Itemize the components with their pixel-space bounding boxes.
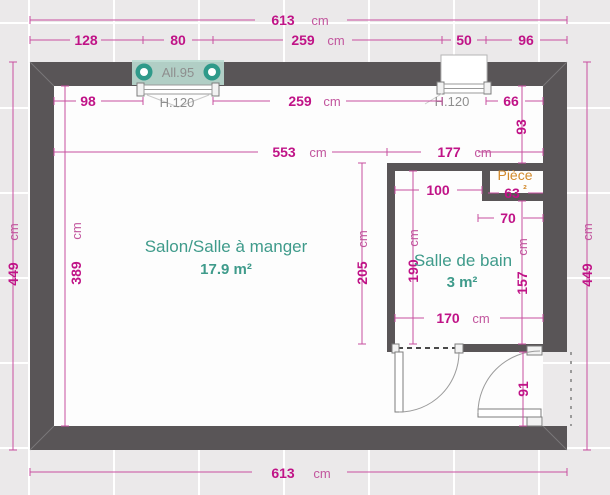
dim-unit: cm — [355, 230, 370, 247]
dim-unit: cm — [472, 311, 489, 326]
dim-unit: cm — [309, 145, 326, 160]
dim-outer-height-right[interactable]: 449 — [579, 263, 595, 287]
dim-bathroom-right-height[interactable]: 157 — [514, 271, 530, 295]
dim-unit: cm — [580, 223, 595, 240]
bathroom-label[interactable]: Salle de bain — [414, 251, 512, 270]
dim-inner-top-right[interactable]: 66 — [503, 93, 519, 109]
dim-bathroom-width[interactable]: 170 — [436, 310, 460, 326]
piece-label[interactable]: Pièce — [497, 167, 532, 183]
door-leaf[interactable] — [478, 409, 541, 417]
window-height-label: H.120 — [160, 95, 195, 110]
dim-top-seg-right[interactable]: 96 — [518, 32, 534, 48]
dim-right-inner-height[interactable]: 93 — [513, 119, 529, 135]
wall-left[interactable] — [30, 62, 54, 450]
window-sill-label: All.95 — [162, 65, 195, 80]
door-frame-cap — [527, 417, 542, 426]
dim-niche-width[interactable]: 63 — [504, 185, 520, 201]
floor-plan: All.95 H.120 H.120 — [0, 0, 610, 495]
dim-unit: cm — [313, 466, 330, 481]
window-frame-cap — [137, 83, 144, 96]
dim-unit: cm — [406, 229, 421, 246]
wall-bottom[interactable] — [30, 426, 567, 450]
dim-bathroom-zone-width[interactable]: 177 — [437, 144, 461, 160]
dim-top-window-right[interactable]: 50 — [456, 32, 472, 48]
window-end-icon — [140, 68, 148, 76]
dim-unit: cm — [327, 33, 344, 48]
dim-unit: cm — [474, 145, 491, 160]
salon-area[interactable]: 17.9 m² — [200, 261, 252, 278]
dim-niche-depth[interactable]: 70 — [500, 210, 516, 226]
window-frame-cap — [437, 82, 444, 94]
dim-inner-height-left[interactable]: 389 — [68, 261, 84, 285]
dim-inner-top-left[interactable]: 98 — [80, 93, 96, 109]
dim-unit: cm — [311, 13, 328, 28]
dim-partition-height[interactable]: 205 — [354, 261, 370, 285]
window-end-icon — [208, 68, 216, 76]
piece-area-superscript: ² — [523, 184, 527, 196]
door-frame-cap — [455, 344, 463, 353]
window-frame-cap — [212, 83, 219, 96]
dim-top-window-left[interactable]: 80 — [170, 32, 186, 48]
dim-niche-offset[interactable]: 100 — [426, 182, 450, 198]
dim-outer-height-left[interactable]: 449 — [5, 262, 21, 286]
floor-plan-canvas: All.95 H.120 H.120 — [0, 0, 610, 495]
dim-inner-top-mid[interactable]: 259 — [288, 93, 312, 109]
salon-label[interactable]: Salon/Salle à manger — [145, 237, 308, 256]
dim-total-width-bottom[interactable]: 613 — [271, 465, 295, 481]
wall-right[interactable] — [543, 62, 567, 352]
dim-top-seg-mid[interactable]: 259 — [291, 32, 315, 48]
window-right-opening[interactable] — [441, 55, 487, 85]
dim-top-seg-left[interactable]: 128 — [74, 32, 98, 48]
dim-total-width-top[interactable]: 613 — [271, 12, 295, 28]
dim-unit: cm — [323, 94, 340, 109]
bathroom-area[interactable]: 3 m² — [447, 274, 478, 291]
dim-unit: cm — [69, 222, 84, 239]
dim-unit: cm — [6, 223, 21, 240]
dim-door-width[interactable]: 91 — [515, 381, 531, 397]
door-frame-cap — [527, 346, 542, 355]
dim-interior-width[interactable]: 553 — [272, 144, 296, 160]
dim-unit: cm — [515, 238, 530, 255]
door-leaf[interactable] — [395, 352, 403, 412]
bathroom-wall-left[interactable] — [387, 163, 395, 352]
window-frame-cap — [484, 82, 491, 94]
